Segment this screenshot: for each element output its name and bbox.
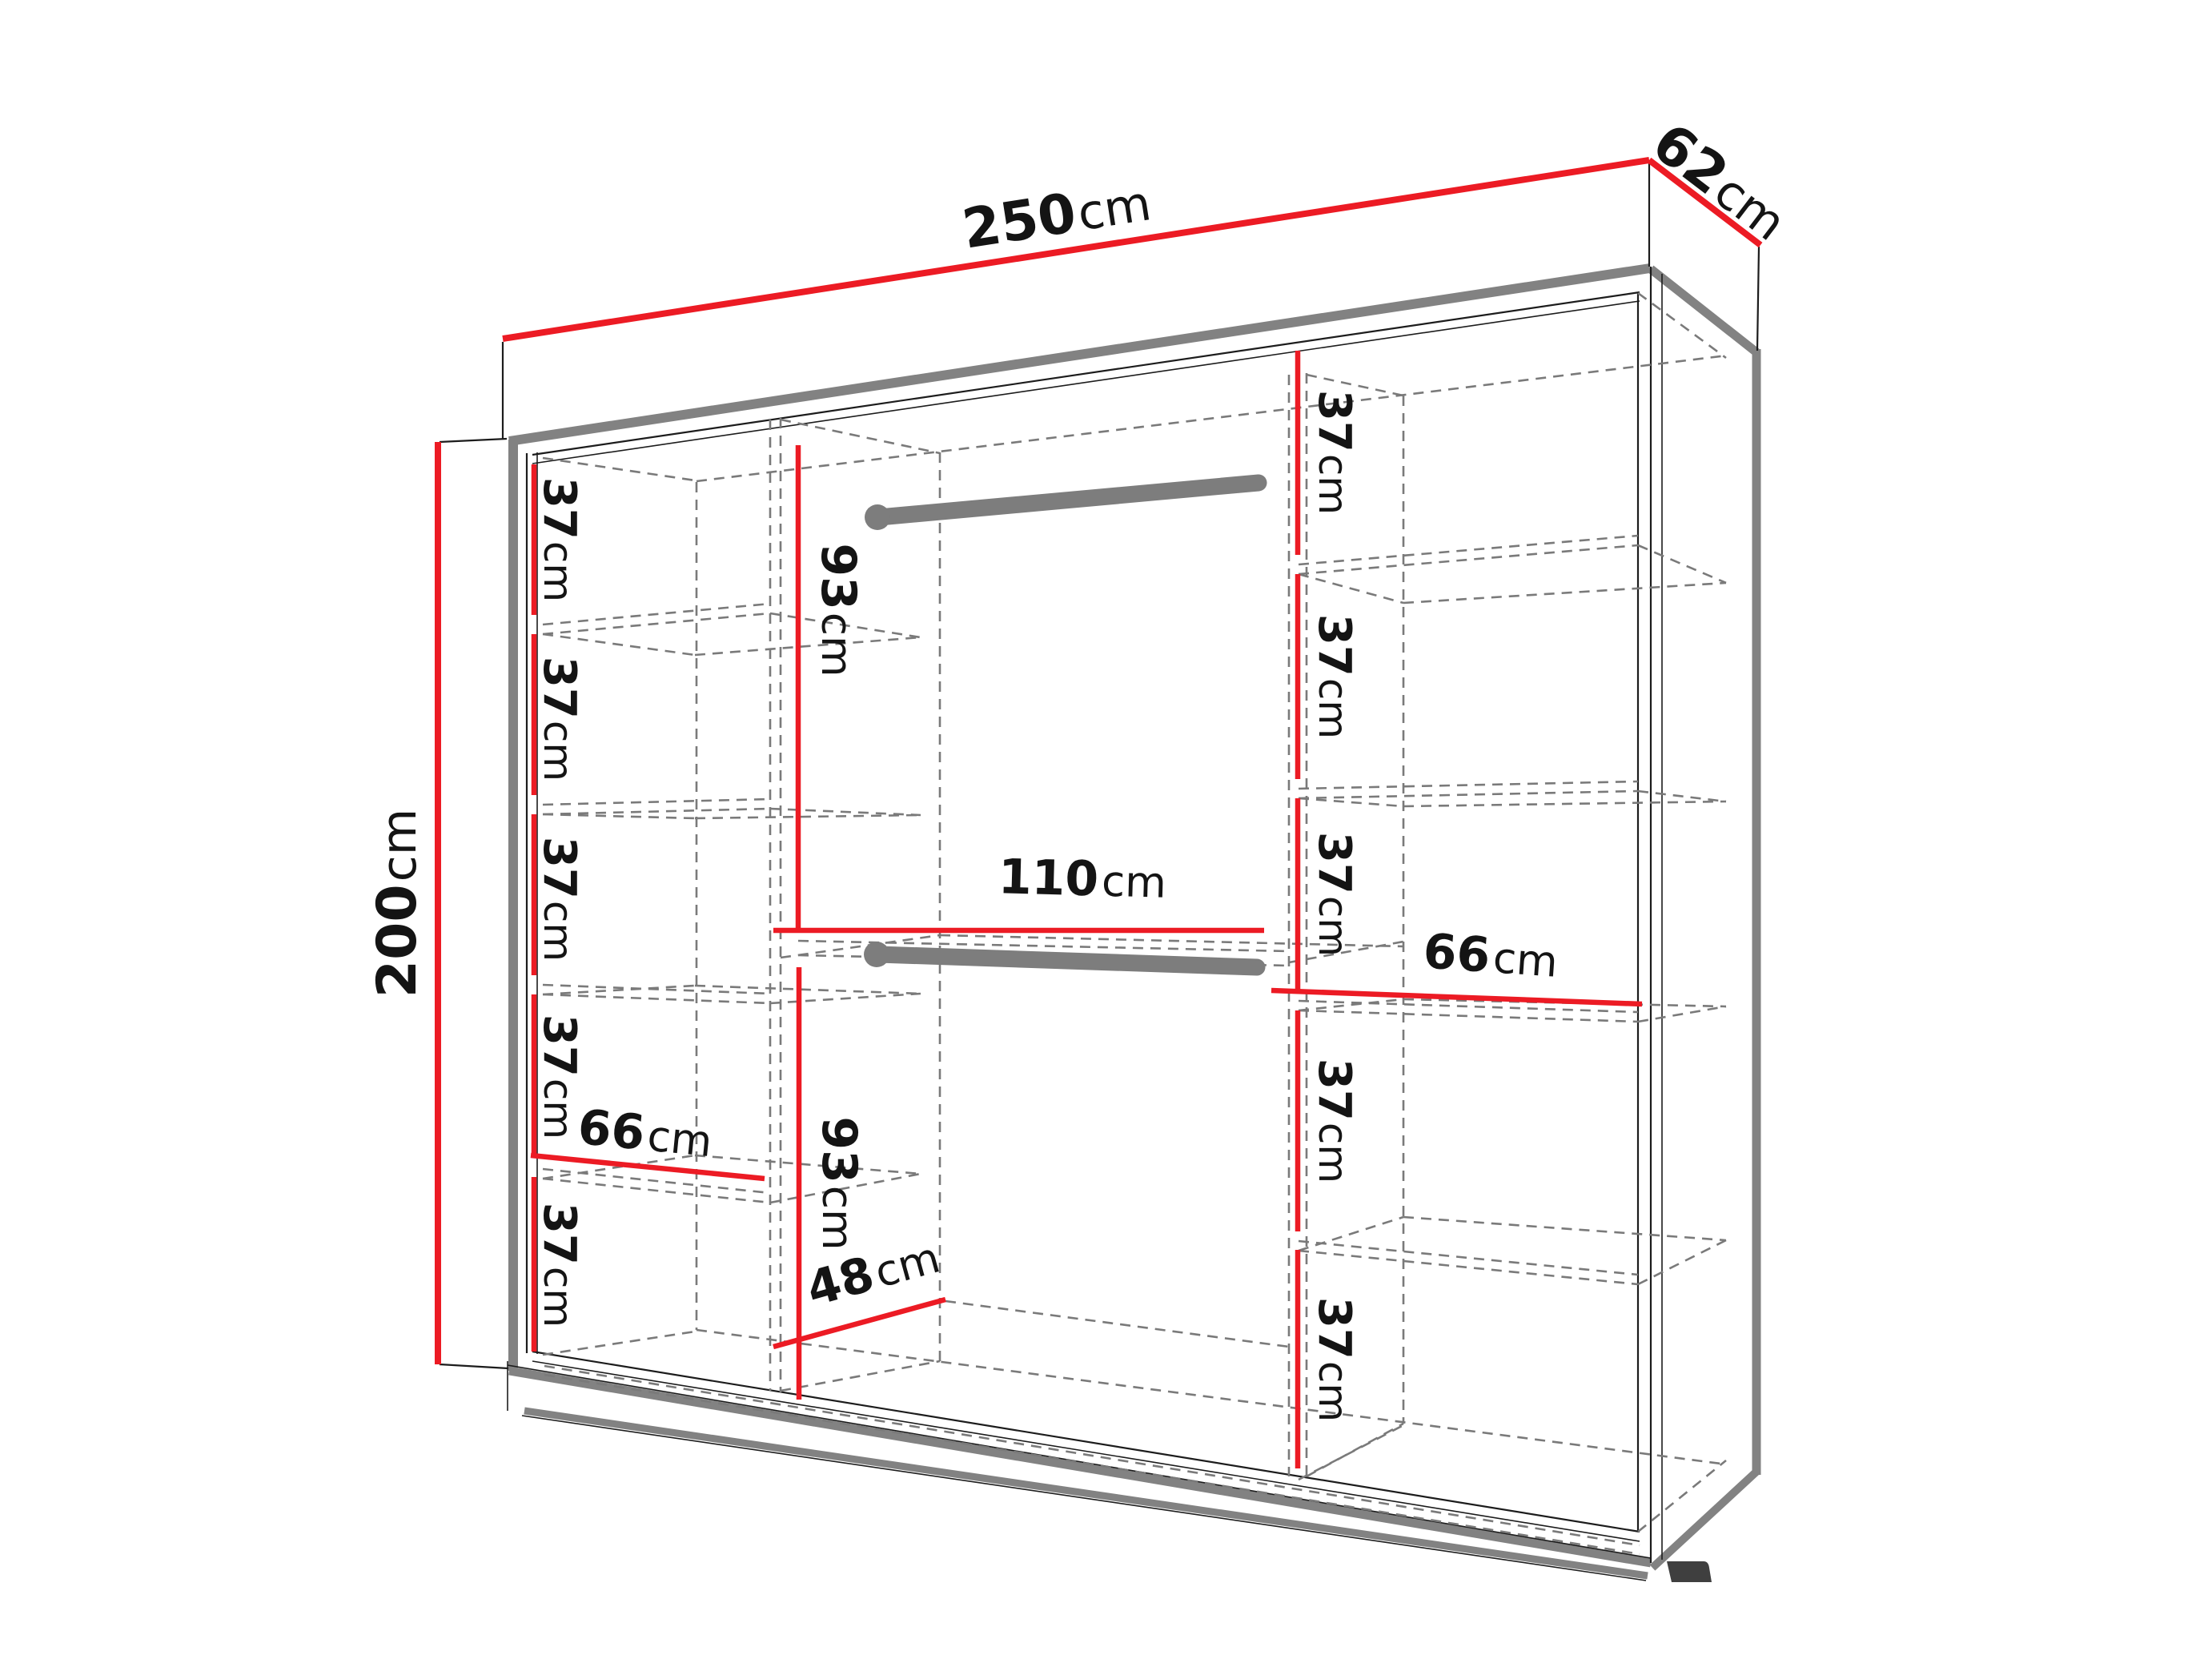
- height-dimension-label: 200cm: [366, 809, 429, 998]
- svg-text:37cm: 37cm: [1308, 832, 1360, 957]
- middle-top-height-label: 93cm: [810, 543, 866, 677]
- top-hanging-rail: [879, 483, 1259, 517]
- wardrobe-dimension-diagram: 250cm 62cm 200cm 37cm 37cm 37cm 37cm 37c…: [0, 0, 2212, 1659]
- bottom-front-edge: [509, 1371, 1651, 1563]
- dimension-labels: 250cm 62cm 200cm 37cm 37cm 37cm 37cm 37c…: [366, 111, 1799, 1422]
- floor-inner-line: [532, 1361, 1640, 1541]
- bottom-hanging-rail: [878, 954, 1257, 967]
- left-partition-top-depth: [781, 420, 940, 453]
- right-shelf-width-line-66: [1271, 990, 1642, 1004]
- top-front-edge: [509, 268, 1650, 441]
- right-shelf-width-label: 66cm: [1421, 923, 1560, 989]
- side-bottom-edge: [1652, 1472, 1756, 1568]
- svg-text:37cm: 37cm: [533, 477, 585, 602]
- left-partition-bottom-depth: [781, 1361, 940, 1391]
- ceiling-inner-line: [532, 301, 1640, 464]
- interior-walls: [527, 292, 1640, 1541]
- svg-text:37cm: 37cm: [533, 1203, 585, 1328]
- wardrobe-foot: [1667, 1561, 1712, 1582]
- plinth-bottom-edge: [524, 1411, 1648, 1576]
- width-dimension-label: 250cm: [958, 170, 1155, 262]
- floor-panel-hidden-b: [544, 1375, 1640, 1554]
- svg-text:37cm: 37cm: [1308, 614, 1360, 739]
- plinth-outline: [522, 1416, 1646, 1581]
- ceiling-front-line: [532, 292, 1640, 455]
- depth-dimension-label: 62cm: [1640, 111, 1799, 253]
- diagram-stage: 250cm 62cm 200cm 37cm 37cm 37cm 37cm 37c…: [0, 0, 2212, 1659]
- witness-height-bottom: [440, 1364, 508, 1368]
- outline-details: [508, 267, 1712, 1582]
- svg-text:37cm: 37cm: [533, 837, 585, 962]
- middle-width-label: 110cm: [998, 849, 1167, 909]
- svg-text:37cm: 37cm: [1308, 1297, 1360, 1422]
- bottom-edge-outline: [508, 1365, 1651, 1558]
- back-floor-line: [697, 1330, 1727, 1464]
- floor-panel-hidden-a: [544, 1366, 1640, 1545]
- left-column-gap-labels: 37cm 37cm 37cm 37cm 37cm: [533, 477, 585, 1328]
- top-rail-end-cap: [865, 504, 890, 530]
- witness-height-top: [440, 439, 507, 442]
- witness-depth-back: [1757, 247, 1759, 351]
- svg-text:37cm: 37cm: [1308, 1058, 1360, 1183]
- middle-bottom-height-label: 93cm: [811, 1116, 867, 1250]
- back-ceiling-line: [697, 355, 1727, 481]
- side-top-edge: [1651, 269, 1756, 352]
- svg-text:37cm: 37cm: [533, 1014, 585, 1139]
- wardrobe-outer-edges: [509, 268, 1756, 1576]
- left-shelf-width-label: 66cm: [576, 1099, 715, 1168]
- svg-text:37cm: 37cm: [1308, 390, 1360, 515]
- bottom-rail-end-cap: [864, 942, 889, 967]
- floor-depth-left: [543, 1332, 695, 1355]
- svg-text:37cm: 37cm: [533, 657, 585, 781]
- right-column-gap-labels: 37cm 37cm 37cm 37cm 37cm: [1308, 390, 1360, 1422]
- back-wall-dashed-lines: [543, 293, 1727, 1554]
